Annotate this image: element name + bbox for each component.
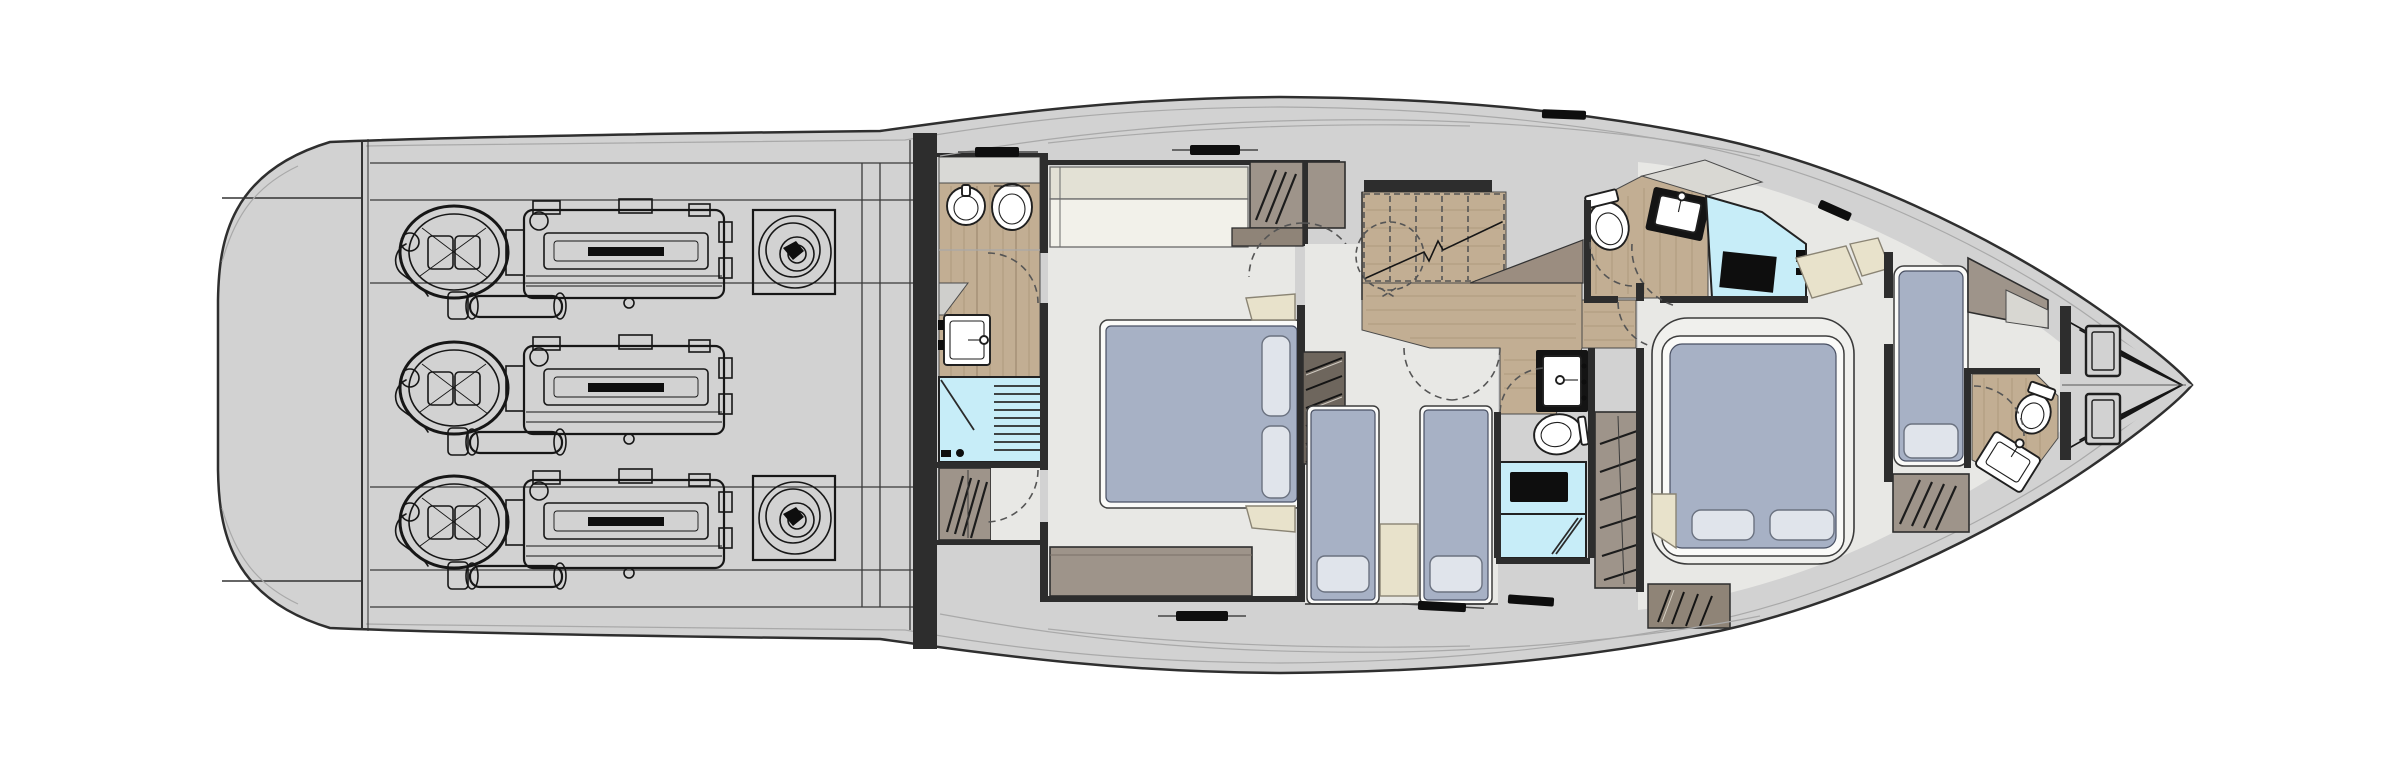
master-bathroom	[937, 153, 1048, 602]
twin-bed-port	[1307, 406, 1379, 604]
deck-hatch	[2086, 394, 2120, 444]
floor-plan-canvas	[0, 0, 2400, 769]
yacht-lower-deck-plan	[0, 0, 2400, 769]
louvered-locker	[1648, 584, 1730, 628]
wardrobe	[939, 468, 991, 540]
washbasin	[938, 315, 990, 365]
dresser	[1050, 547, 1252, 596]
engine-room-bulkhead	[913, 133, 937, 649]
nightstand	[1380, 524, 1418, 596]
vip-bed	[1662, 336, 1844, 556]
shower	[1498, 462, 1586, 558]
deck-vent	[1542, 109, 1586, 120]
sofa	[1050, 167, 1248, 247]
deck-hatch	[2086, 326, 2120, 376]
nightstand	[1246, 506, 1295, 532]
washbasin	[1536, 350, 1588, 412]
shower	[939, 377, 1048, 462]
master-bed	[1100, 320, 1303, 508]
anchor-locker	[2060, 302, 2192, 468]
twin-bed-starboard	[1420, 406, 1492, 604]
wardrobe	[1893, 474, 1969, 532]
toilet	[992, 184, 1032, 230]
crew-berth	[1894, 266, 1968, 466]
nightstand	[1246, 294, 1295, 320]
